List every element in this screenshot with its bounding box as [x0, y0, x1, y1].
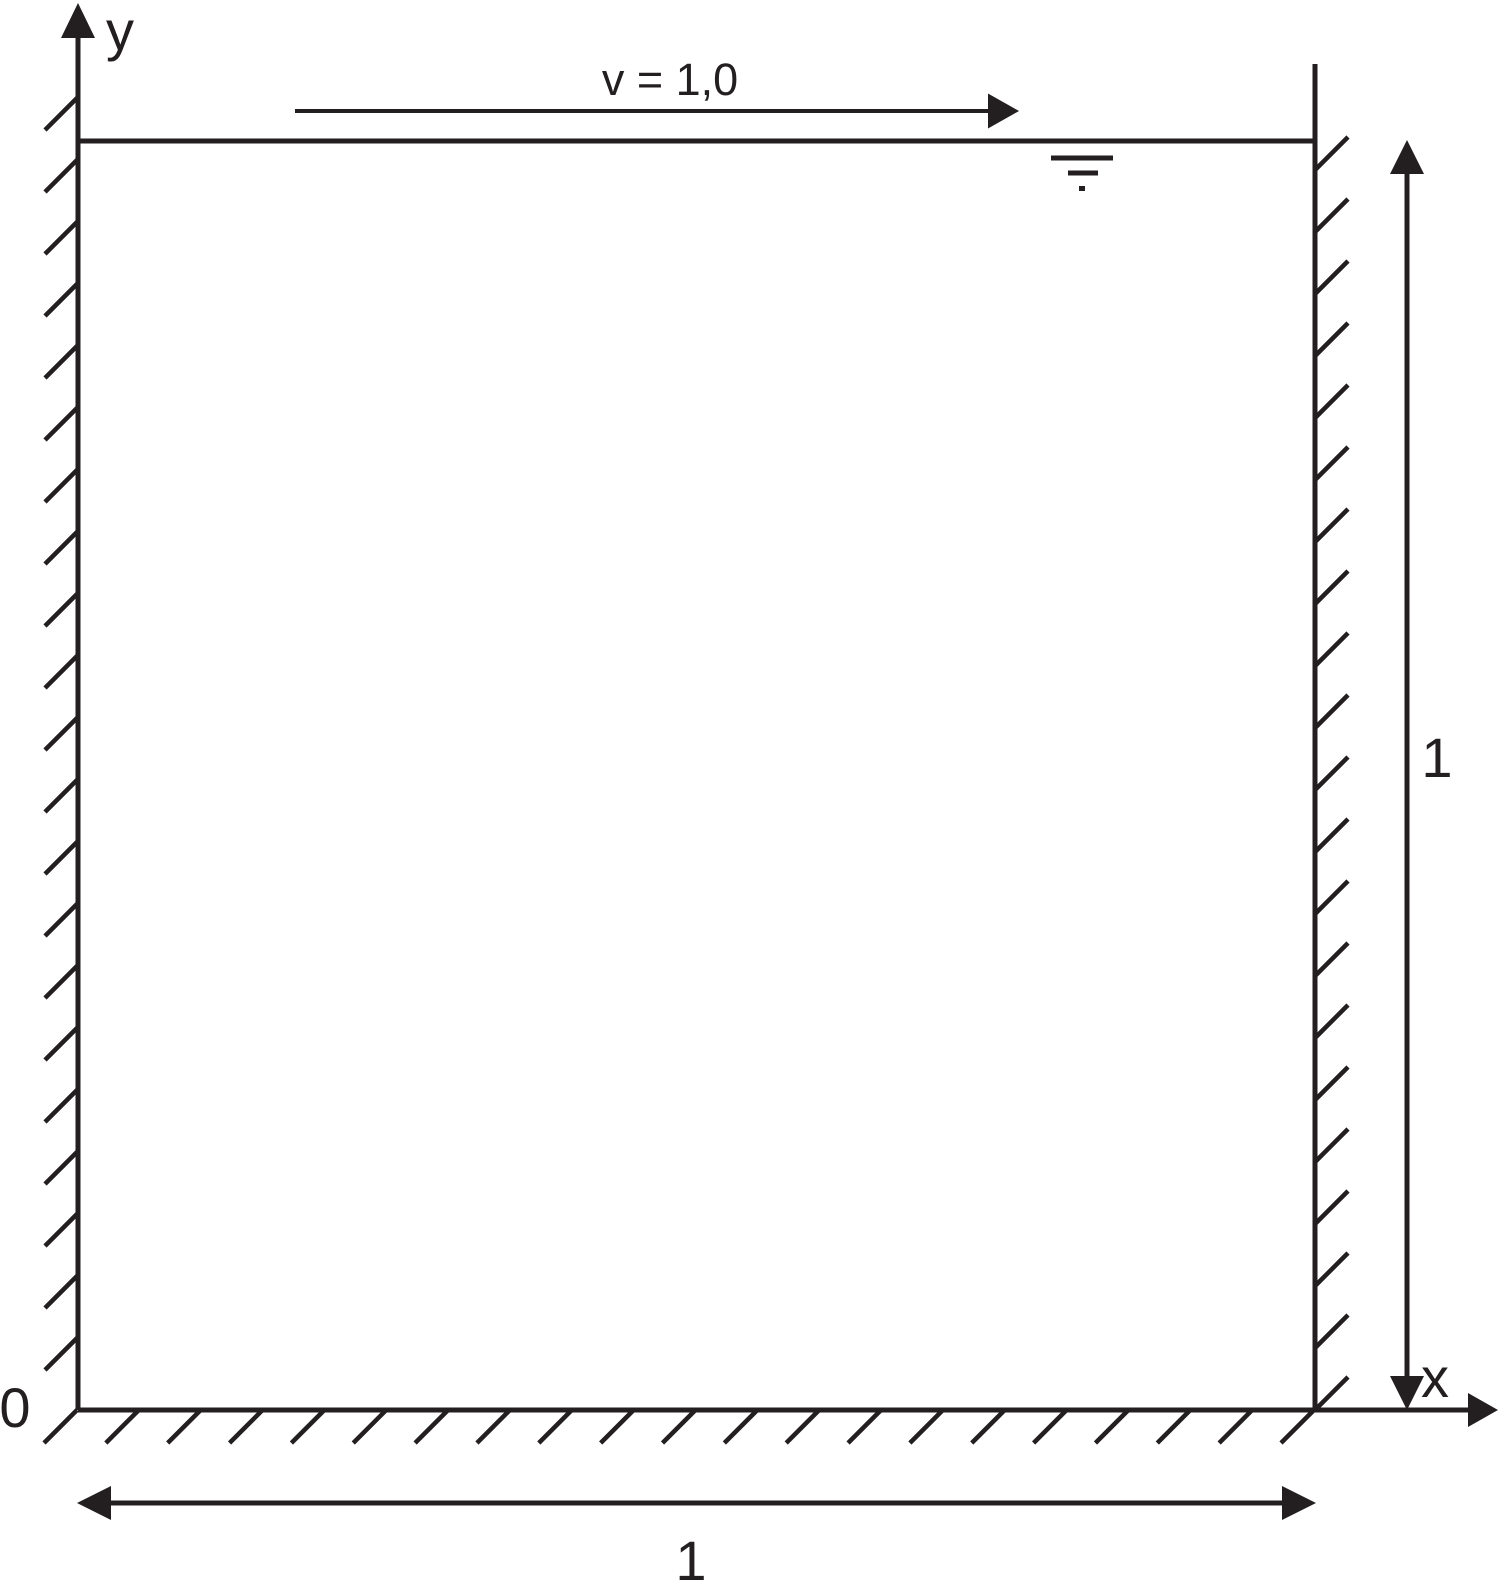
- hatch-mark: [45, 407, 78, 440]
- water-surface-icon: [1051, 158, 1113, 189]
- hatch-mark: [1315, 447, 1348, 480]
- hatch-mark: [1315, 695, 1348, 728]
- hatch-mark: [45, 221, 78, 254]
- hatch-mark: [45, 593, 78, 626]
- diagram-svg: y x 0 v = 1,0: [0, 0, 1500, 1593]
- y-axis: y: [61, 0, 134, 1410]
- width-dimension-label: 1: [675, 1529, 706, 1592]
- hatch-mark: [1219, 1410, 1252, 1443]
- hatch-mark: [1315, 323, 1348, 356]
- hatch-mark: [1157, 1410, 1190, 1443]
- hatch-mark: [1315, 137, 1348, 170]
- hatch-mark: [1315, 571, 1348, 604]
- height-dimension-down-arrowhead-icon: [1390, 1376, 1424, 1410]
- hatch-mark: [45, 717, 78, 750]
- cavity-flow-diagram: y x 0 v = 1,0: [0, 0, 1500, 1593]
- hatch-mark: [1315, 199, 1348, 232]
- hatch-mark: [848, 1410, 881, 1443]
- x-axis-arrowhead-icon: [1468, 1393, 1498, 1427]
- hatch-mark: [353, 1410, 386, 1443]
- hatch-mark: [910, 1410, 943, 1443]
- velocity-label: v = 1,0: [602, 54, 738, 105]
- hatch-mark: [45, 469, 78, 502]
- hatch-mark: [1315, 385, 1348, 418]
- origin-label: 0: [0, 1376, 31, 1439]
- hatch-mark: [45, 1213, 78, 1246]
- left-wall-hatching: [45, 97, 78, 1370]
- hatch-mark: [1315, 1191, 1348, 1224]
- hatch-mark: [45, 345, 78, 378]
- hatch-mark: [291, 1410, 324, 1443]
- y-axis-arrowhead-icon: [61, 3, 95, 38]
- hatch-mark: [1281, 1410, 1314, 1443]
- hatch-mark: [45, 965, 78, 998]
- hatch-mark: [972, 1410, 1005, 1443]
- height-dimension: 1: [1390, 140, 1453, 1410]
- hatch-mark: [106, 1410, 139, 1443]
- hatch-mark: [45, 1089, 78, 1122]
- hatch-mark: [1315, 943, 1348, 976]
- hatch-mark: [1034, 1410, 1067, 1443]
- hatch-mark: [786, 1410, 819, 1443]
- width-dimension-right-arrowhead-icon: [1282, 1486, 1316, 1520]
- hatch-mark: [1095, 1410, 1128, 1443]
- hatch-mark: [44, 1410, 77, 1443]
- hatch-mark: [1315, 261, 1348, 294]
- x-axis: x: [78, 1346, 1498, 1427]
- hatch-mark: [1315, 819, 1348, 852]
- height-dimension-label: 1: [1421, 726, 1452, 789]
- width-dimension: 1: [77, 1486, 1316, 1592]
- velocity-arrow: v = 1,0: [295, 54, 1019, 129]
- hatch-mark: [45, 283, 78, 316]
- y-axis-label: y: [106, 0, 134, 62]
- hatch-mark: [45, 1027, 78, 1060]
- velocity-arrowhead-icon: [988, 94, 1019, 129]
- hatch-mark: [1315, 757, 1348, 790]
- hatch-mark: [539, 1410, 572, 1443]
- hatch-mark: [1315, 1005, 1348, 1038]
- hatch-mark: [45, 779, 78, 812]
- hatch-mark: [45, 97, 78, 130]
- hatch-mark: [1315, 633, 1348, 666]
- hatch-mark: [230, 1410, 263, 1443]
- height-dimension-up-arrowhead-icon: [1390, 140, 1424, 174]
- hatch-mark: [168, 1410, 201, 1443]
- hatch-mark: [45, 1151, 78, 1184]
- hatch-mark: [45, 159, 78, 192]
- hatch-mark: [45, 903, 78, 936]
- hatch-mark: [1315, 1067, 1348, 1100]
- hatch-mark: [663, 1410, 696, 1443]
- x-axis-label: x: [1421, 1346, 1449, 1409]
- hatch-mark: [1315, 881, 1348, 914]
- hatch-mark: [724, 1410, 757, 1443]
- width-dimension-left-arrowhead-icon: [77, 1486, 111, 1520]
- hatch-mark: [415, 1410, 448, 1443]
- right-wall-hatching: [1315, 137, 1348, 1410]
- hatch-mark: [1315, 1315, 1348, 1348]
- hatch-mark: [45, 1337, 78, 1370]
- bottom-wall-hatching: [44, 1410, 1314, 1443]
- hatch-mark: [477, 1410, 510, 1443]
- hatch-mark: [601, 1410, 634, 1443]
- hatch-mark: [1315, 1253, 1348, 1286]
- hatch-mark: [45, 841, 78, 874]
- hatch-mark: [45, 1275, 78, 1308]
- hatch-mark: [1315, 509, 1348, 542]
- hatch-mark: [1315, 1129, 1348, 1162]
- hatch-mark: [45, 531, 78, 564]
- hatch-mark: [45, 655, 78, 688]
- hatch-mark: [1315, 1377, 1348, 1410]
